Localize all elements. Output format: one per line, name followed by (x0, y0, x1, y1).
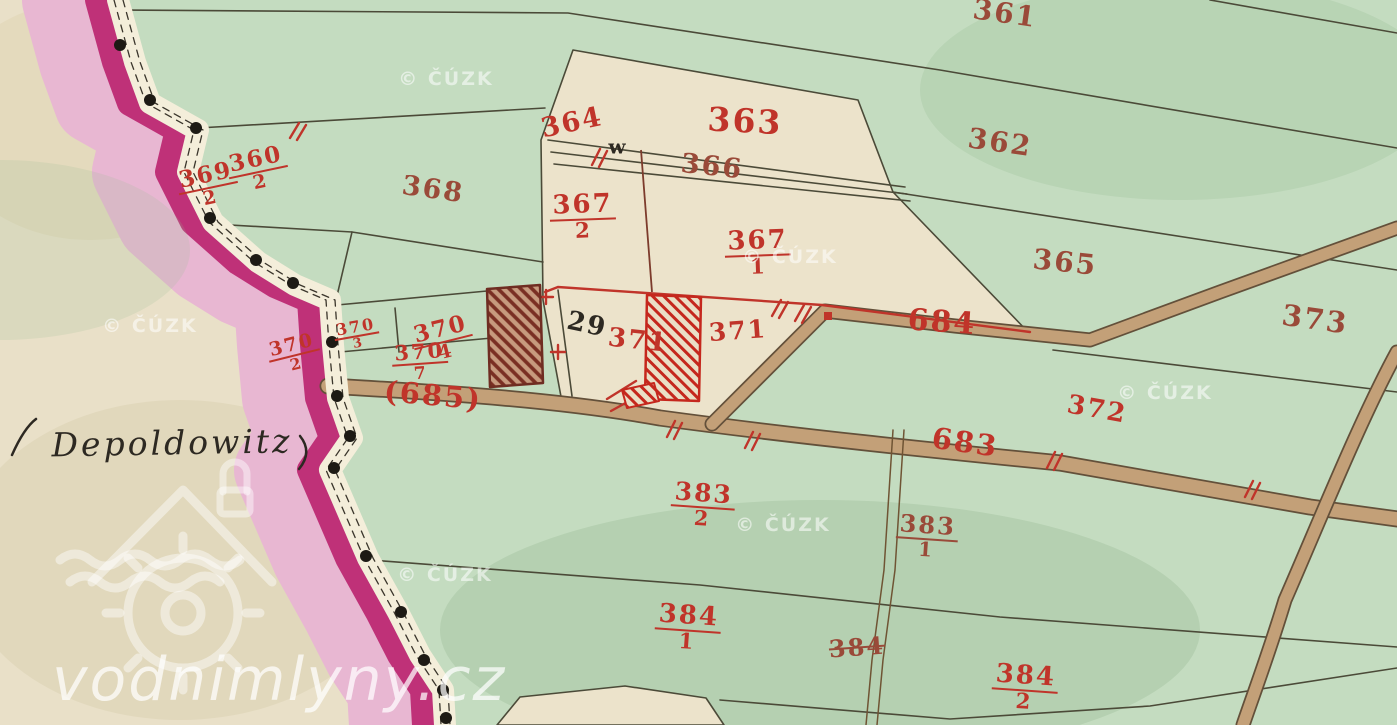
parcel-label-383-2: 3832 (669, 479, 736, 531)
cuzk-watermark: © ČÚZK (102, 315, 198, 337)
parcel-label-685: (685) (383, 378, 483, 414)
parcel-label-361: 361 (971, 0, 1039, 32)
parcel-label-363: 363 (707, 103, 783, 138)
parcel-label-684: 684 (907, 306, 977, 339)
parcel-label-369-2: 3692 (174, 158, 242, 213)
parcel-label-384-2: 3842 (990, 661, 1060, 714)
parcel-label-365: 365 (1032, 246, 1099, 279)
parcel-label-364: 364 (539, 104, 605, 142)
parcel-label-367-2: 3672 (549, 191, 617, 242)
cuzk-watermark: © ČÚZK (742, 246, 838, 268)
parcel-label-366: 366 (680, 151, 745, 183)
parcel-label-384-1: 3841 (653, 601, 723, 654)
parcel-label-373: 373 (1280, 302, 1350, 339)
cadastral-map: 3613623633643663653672367136836023692370… (0, 0, 1397, 725)
parcel-label-371: 371 (708, 317, 768, 345)
parcel-label-384-old: 384 (828, 635, 886, 662)
cuzk-watermark: © ČÚZK (397, 564, 493, 586)
parcel-label-place-name: Depoldowitz (51, 425, 292, 461)
parcel-label-29: 29 (565, 309, 609, 342)
site-watermark: vodnimlyny.cz (52, 645, 506, 715)
parcel-label-362: 362 (966, 125, 1034, 160)
cuzk-watermark: © ČÚZK (735, 514, 831, 536)
cuzk-watermark: © ČÚZK (1117, 382, 1213, 404)
parcel-label-w-mark: w (608, 138, 627, 157)
parcel-label-371-house: 371 (607, 326, 670, 357)
cuzk-watermark: © ČÚZK (398, 68, 494, 90)
parcel-label-383-1: 3831 (894, 512, 959, 562)
parcel-label-683: 683 (930, 425, 1000, 462)
parcel-label-370-3: 3703 (332, 315, 382, 354)
label-layer: 3613623633643663653672367136836023692370… (0, 0, 1397, 725)
parcel-label-368: 368 (400, 173, 465, 207)
parcel-label-370-2: 3702 (264, 330, 323, 378)
